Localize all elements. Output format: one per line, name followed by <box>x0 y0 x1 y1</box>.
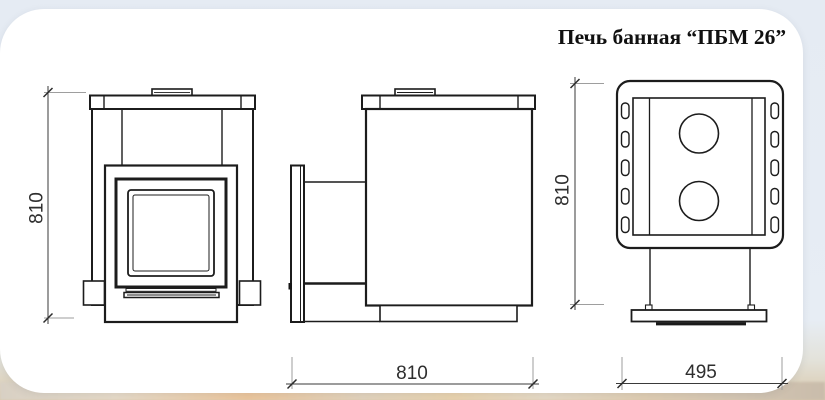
front-view <box>84 89 261 322</box>
front-top-plate <box>90 96 255 110</box>
vent-slot <box>622 217 630 233</box>
top-view <box>617 81 783 324</box>
dimension-label-plan-depth: 810 <box>553 174 574 206</box>
side-base <box>380 306 517 322</box>
vent-slot <box>622 189 630 205</box>
vent-slot <box>771 160 779 176</box>
vent-slot <box>771 132 779 148</box>
dimension-front-height: 810 <box>27 86 86 324</box>
top-base-flange <box>632 310 767 322</box>
dimension-label-plan-width: 495 <box>685 362 717 383</box>
side-handle-nub <box>289 283 293 290</box>
side-top-plate <box>362 96 535 110</box>
dimension-label-height: 810 <box>27 192 48 224</box>
front-door-glass <box>133 195 209 271</box>
top-chimney-opening <box>680 114 719 153</box>
front-foot-right <box>240 281 261 305</box>
vent-slot <box>771 217 779 233</box>
dimension-plan-depth: 810 <box>553 77 604 310</box>
dimension-plan-width: 495 <box>616 357 788 390</box>
top-second-opening <box>680 182 719 221</box>
side-body <box>366 109 532 306</box>
dimension-label-side-depth: 810 <box>396 363 428 384</box>
page-title: Печь банная “ПБМ 26” <box>558 25 786 49</box>
vent-slot <box>622 160 630 176</box>
vent-slot <box>622 132 630 148</box>
vent-slot <box>771 103 779 119</box>
vent-slot <box>622 103 630 119</box>
technical-drawing: 810 810 810 495 Печь банная “ПБМ 26” <box>0 0 825 400</box>
side-door-flange <box>291 166 304 323</box>
front-foot-left <box>84 281 105 305</box>
vent-slot <box>771 189 779 205</box>
dimension-side-depth: 810 <box>286 357 539 389</box>
front-door-sill <box>126 289 216 292</box>
side-view <box>289 89 536 322</box>
